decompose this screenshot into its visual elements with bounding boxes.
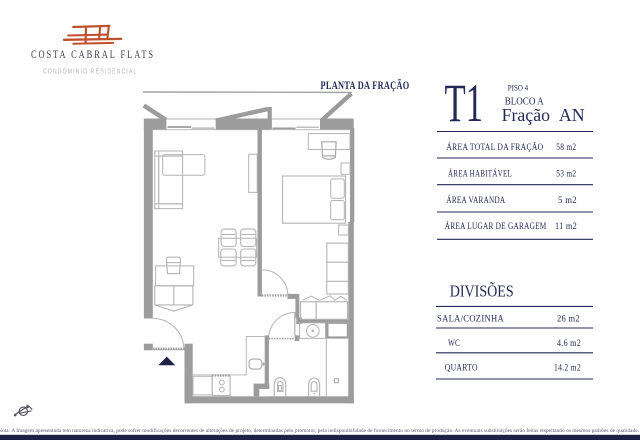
svg-text:WC: WC	[448, 338, 460, 349]
svg-text:ÁREA LUGAR DE GARAGEM: ÁREA LUGAR DE GARAGEM	[445, 220, 547, 232]
svg-text:QUARTO: QUARTO	[445, 363, 478, 374]
svg-text:COSTA CABRAL FLATS: COSTA CABRAL FLATS	[31, 49, 155, 61]
svg-text:SALA/COZINHA: SALA/COZINHA	[437, 314, 504, 325]
svg-text:Fração AN: Fração AN	[502, 105, 585, 125]
svg-text:58 m2: 58 m2	[556, 142, 576, 153]
svg-text:PISO 4: PISO 4	[508, 84, 528, 93]
svg-text:Nota: A Imagem apresentada tem: Nota: A Imagem apresentada tem natureza …	[0, 427, 639, 434]
svg-text:DIVISÕES: DIVISÕES	[450, 282, 514, 301]
svg-text:53 m2: 53 m2	[556, 169, 576, 180]
svg-text:5 m2: 5 m2	[558, 195, 577, 206]
svg-text:26 m2: 26 m2	[557, 314, 580, 325]
svg-text:CONDOMINIO RESIDENCIAL: CONDOMINIO RESIDENCIAL	[43, 66, 138, 75]
svg-text:11 m2: 11 m2	[555, 221, 577, 232]
svg-text:ÁREA HABITÁVEL: ÁREA HABITÁVEL	[448, 168, 512, 180]
svg-text:ÁREA VARANDA: ÁREA VARANDA	[446, 194, 505, 206]
svg-text:T1: T1	[445, 73, 484, 133]
svg-text:PLANTA DA FRAÇÃO: PLANTA DA FRAÇÃO	[321, 78, 410, 92]
svg-text:4.6 m2: 4.6 m2	[557, 338, 581, 349]
svg-text:ÁREA TOTAL DA FRAÇÃO: ÁREA TOTAL DA FRAÇÃO	[446, 141, 543, 153]
svg-text:14.2 m2: 14.2 m2	[554, 363, 581, 374]
